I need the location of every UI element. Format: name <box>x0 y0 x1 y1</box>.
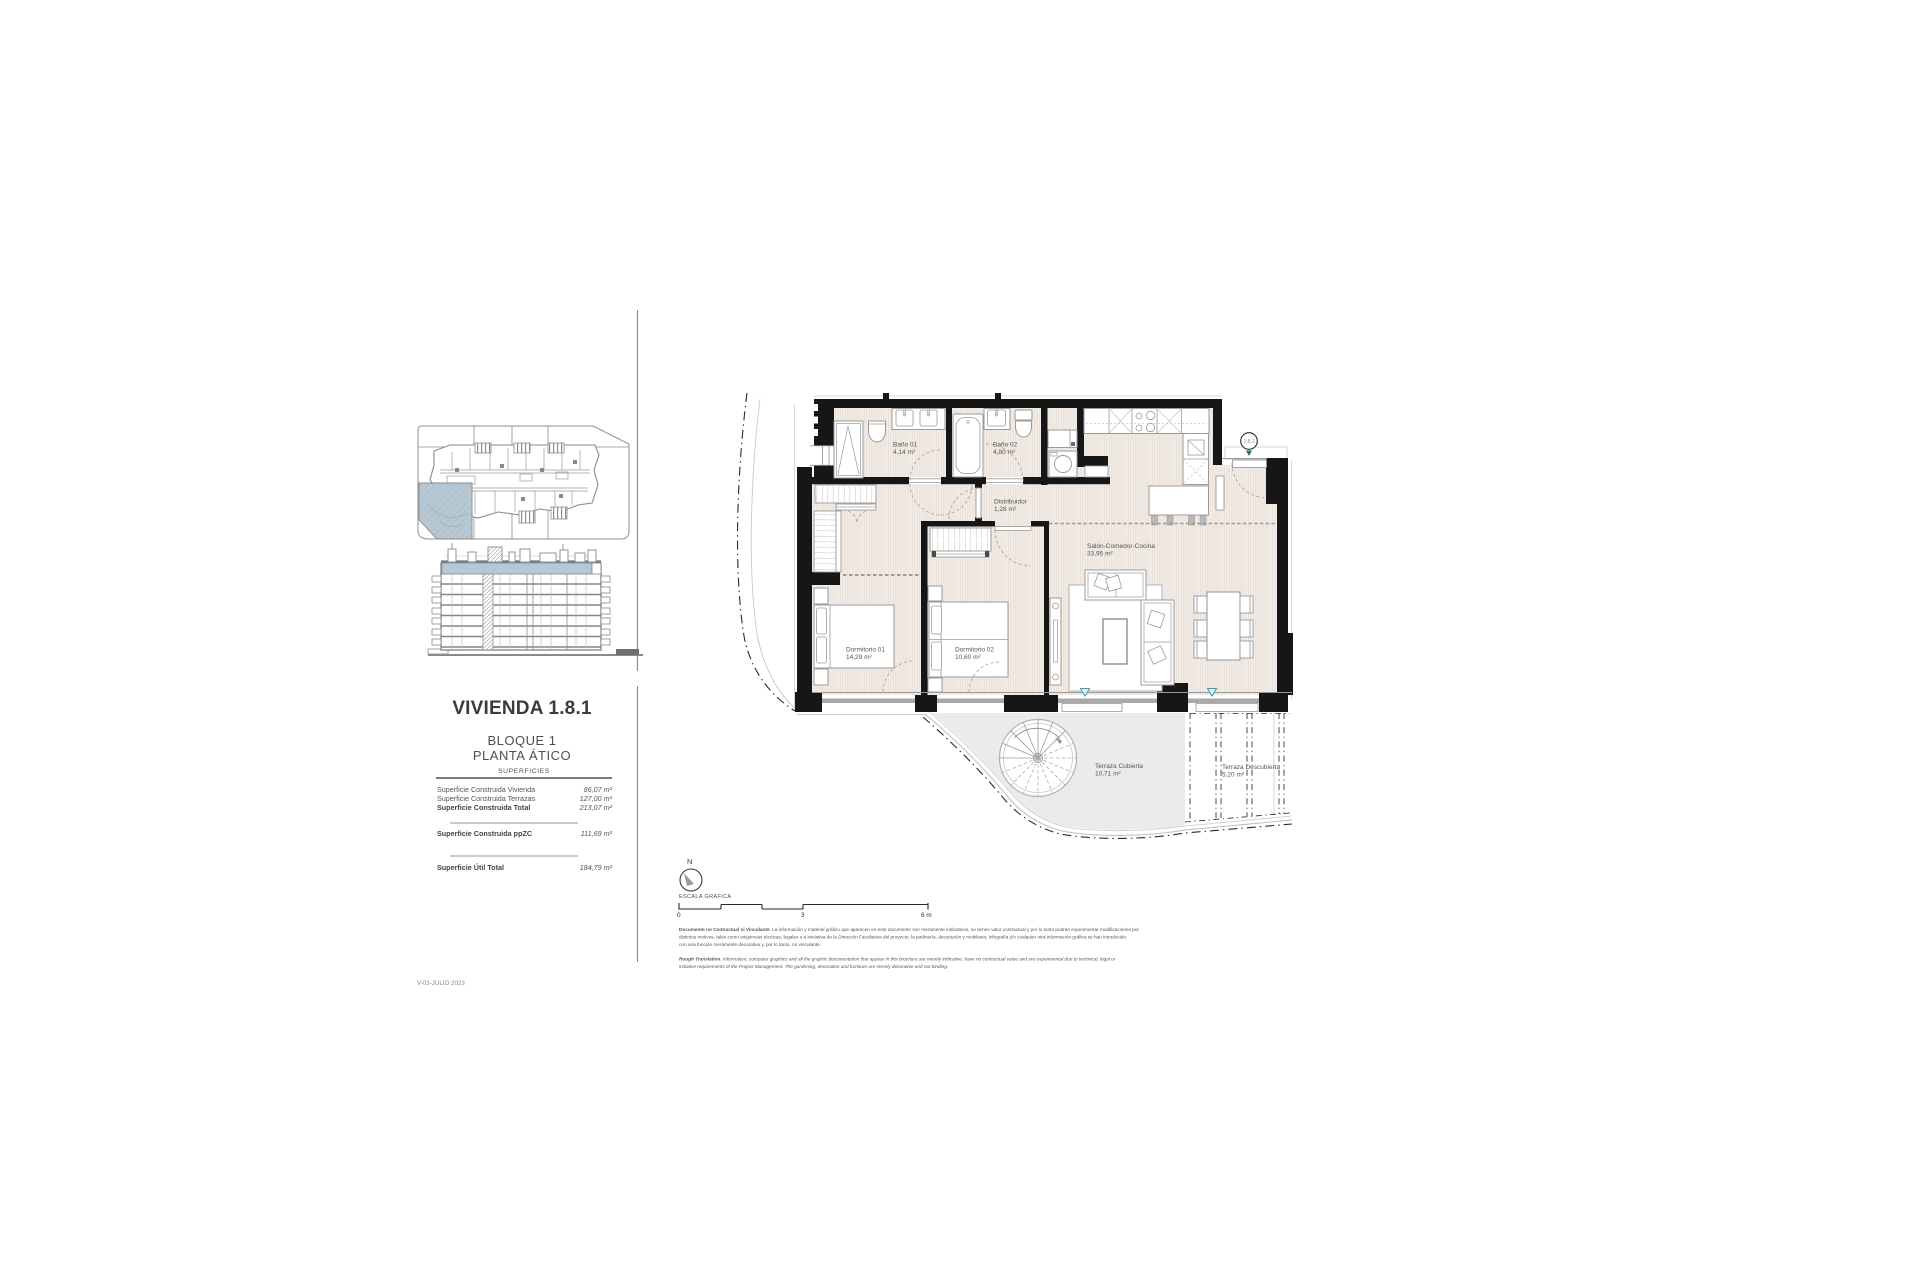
svg-text:5,20 m²: 5,20 m² <box>1222 772 1245 779</box>
svg-text:PLANTA ÁTICO: PLANTA ÁTICO <box>473 748 571 763</box>
svg-text:184,79 m²: 184,79 m² <box>580 863 613 872</box>
svg-text:0: 0 <box>677 912 681 919</box>
svg-text:Salón-Comedor-Cocina: Salón-Comedor-Cocina <box>1087 543 1155 550</box>
svg-text:Documento no Contractual ni Vi: Documento no Contractual ni Vinculante. … <box>679 927 1139 932</box>
svg-text:Superficie Construida Terrazas: Superficie Construida Terrazas <box>437 794 536 803</box>
svg-text:1.8.1: 1.8.1 <box>1243 439 1254 445</box>
svg-text:distintos motivos, tales como: distintos motivos, tales como exigencias… <box>679 935 1126 940</box>
svg-text:ESCALA GRÁFICA: ESCALA GRÁFICA <box>679 893 731 900</box>
svg-text:VIVIENDA 1.8.1: VIVIENDA 1.8.1 <box>452 698 592 719</box>
svg-text:Dormitorio 01: Dormitorio 01 <box>846 647 885 654</box>
svg-text:Terraza Cubierta: Terraza Cubierta <box>1095 763 1143 770</box>
svg-text:Superficie Construida Total: Superficie Construida Total <box>437 803 530 812</box>
svg-text:213,07 m²: 213,07 m² <box>579 803 613 812</box>
svg-text:14,29 m²: 14,29 m² <box>846 654 872 661</box>
svg-text:con una función meramente deco: con una función meramente decorativa y, … <box>679 942 821 947</box>
svg-text:SUPERFICIES: SUPERFICIES <box>498 768 550 775</box>
svg-text:Baño 02: Baño 02 <box>993 442 1018 449</box>
svg-text:Superficie Construida ppZC: Superficie Construida ppZC <box>437 829 532 838</box>
svg-text:Superficie Útil Total: Superficie Útil Total <box>437 863 504 872</box>
svg-text:4,80 m²: 4,80 m² <box>993 449 1016 456</box>
svg-text:10,60 m²: 10,60 m² <box>955 654 981 661</box>
svg-text:BLOQUE 1: BLOQUE 1 <box>487 733 556 748</box>
svg-text:Rough Translation. Information: Rough Translation. Information, computer… <box>679 957 1116 962</box>
svg-text:Terraza Descubierta: Terraza Descubierta <box>1222 764 1281 771</box>
svg-text:initiative requirements of the: initiative requirements of the Project M… <box>679 964 948 969</box>
svg-text:4,14 m²: 4,14 m² <box>893 449 916 456</box>
svg-text:Distribuidor: Distribuidor <box>994 499 1028 506</box>
svg-text:3: 3 <box>801 912 805 919</box>
svg-text:111,69 m²: 111,69 m² <box>581 829 613 838</box>
svg-text:Dormitorio 02: Dormitorio 02 <box>955 647 994 654</box>
svg-text:10,71 m²: 10,71 m² <box>1095 771 1121 778</box>
svg-text:6 m: 6 m <box>921 912 932 919</box>
svg-text:1,28 m²: 1,28 m² <box>994 506 1017 513</box>
svg-text:86,07 m²: 86,07 m² <box>584 785 613 794</box>
svg-text:V-03-JULIO 2023: V-03-JULIO 2023 <box>417 980 465 987</box>
svg-text:Baño 01: Baño 01 <box>893 442 918 449</box>
svg-text:33,95 m²: 33,95 m² <box>1087 551 1113 558</box>
svg-text:N: N <box>687 857 692 866</box>
svg-text:127,00 m²: 127,00 m² <box>580 794 613 803</box>
svg-text:Superficie Construida Vivienda: Superficie Construida Vivienda <box>437 785 535 794</box>
